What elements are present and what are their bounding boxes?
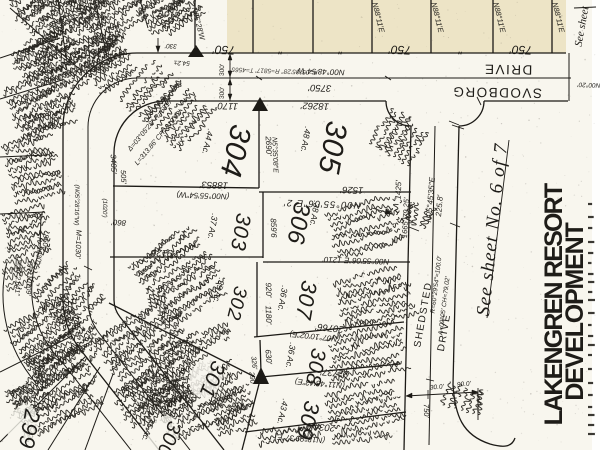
svg-text:N00°20′: N00°20′ bbox=[577, 81, 600, 90]
svg-text:1170': 1170' bbox=[214, 100, 238, 112]
svg-text:920': 920' bbox=[264, 282, 274, 298]
svg-text:859'6: 859'6 bbox=[269, 218, 279, 238]
svg-text:326': 326' bbox=[249, 356, 257, 370]
svg-text:1425': 1425' bbox=[394, 180, 404, 200]
svg-text:54.2±: 54.2± bbox=[173, 59, 190, 67]
svg-text:90.0': 90.0' bbox=[457, 380, 472, 388]
svg-text:DEVELOPMENT: DEVELOPMENT bbox=[561, 223, 589, 401]
svg-text:M=1030': M=1030' bbox=[73, 230, 83, 260]
svg-text:(1020'): (1020') bbox=[101, 198, 108, 217]
svg-text:330': 330' bbox=[164, 42, 177, 49]
svg-text:750': 750' bbox=[509, 43, 532, 58]
svg-text:750': 750' bbox=[212, 43, 235, 58]
svg-text:300': 300' bbox=[219, 64, 226, 76]
svg-text:3750': 3750' bbox=[307, 82, 332, 94]
svg-text:1180': 1180' bbox=[264, 305, 274, 325]
svg-text:30.0': 30.0' bbox=[430, 383, 445, 391]
svg-text:18853': 18853' bbox=[198, 178, 228, 190]
svg-text:1526': 1526' bbox=[339, 184, 364, 196]
svg-text:SVODBORG: SVODBORG bbox=[452, 84, 542, 101]
svg-text:630': 630' bbox=[263, 349, 273, 365]
svg-text:(N00°55′54″W): (N00°55′54″W) bbox=[176, 190, 230, 201]
svg-text:300': 300' bbox=[219, 87, 226, 99]
svg-text:18262': 18262' bbox=[299, 99, 329, 111]
svg-text:(N05°28′16″W): (N05°28′16″W) bbox=[73, 185, 81, 226]
svg-text:DRIVE: DRIVE bbox=[483, 62, 532, 78]
svg-text:750': 750' bbox=[422, 404, 432, 419]
svg-text:290: 290 bbox=[247, 371, 255, 384]
svg-text:505': 505' bbox=[119, 170, 129, 185]
svg-text:N5°35′08″E: N5°35′08″E bbox=[270, 137, 279, 173]
svg-text:3405': 3405' bbox=[109, 154, 119, 174]
svg-text:860': 860' bbox=[111, 218, 127, 228]
